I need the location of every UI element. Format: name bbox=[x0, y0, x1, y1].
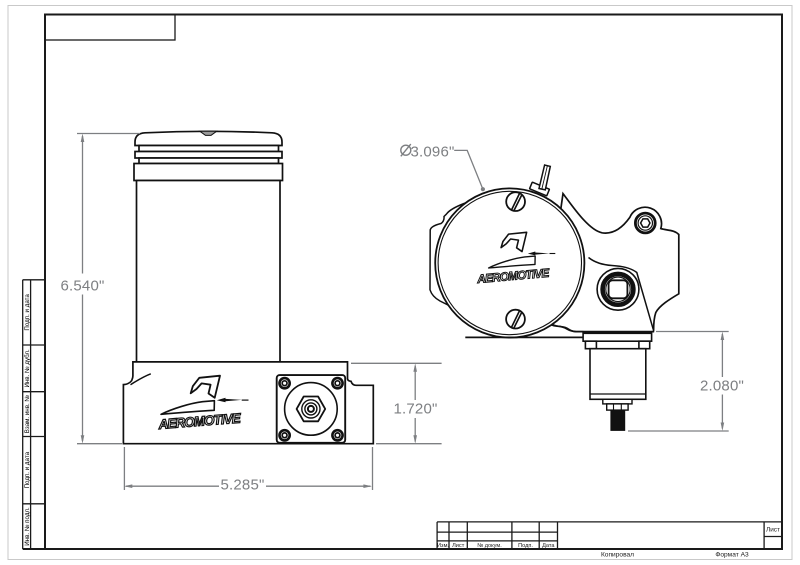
svg-text:Копировал: Копировал bbox=[601, 552, 634, 559]
svg-text:3.096": 3.096" bbox=[410, 144, 454, 161]
svg-text:Инв. № подл.: Инв. № подл. bbox=[24, 507, 31, 546]
svg-text:6.540": 6.540" bbox=[60, 277, 104, 294]
svg-text:Лист: Лист bbox=[766, 527, 780, 534]
svg-text:Взам. инв. №: Взам. инв. № bbox=[24, 395, 31, 434]
svg-text:№ докум.: № докум. bbox=[477, 543, 502, 549]
svg-text:Изм.: Изм. bbox=[437, 543, 449, 549]
svg-text:Подп.: Подп. bbox=[518, 543, 533, 549]
svg-text:Формат А3: Формат А3 bbox=[715, 552, 749, 559]
svg-text:1.720": 1.720" bbox=[393, 400, 437, 417]
svg-text:Подп. и дата: Подп. и дата bbox=[24, 451, 31, 488]
svg-text:5.285": 5.285" bbox=[220, 477, 264, 494]
svg-text:Подп. и дата: Подп. и дата bbox=[24, 294, 31, 331]
svg-text:Инв. № дубл.: Инв. № дубл. bbox=[24, 349, 31, 388]
svg-text:Дата: Дата bbox=[542, 543, 555, 549]
svg-text:2.080": 2.080" bbox=[700, 378, 744, 395]
svg-text:Лист: Лист bbox=[452, 543, 465, 549]
